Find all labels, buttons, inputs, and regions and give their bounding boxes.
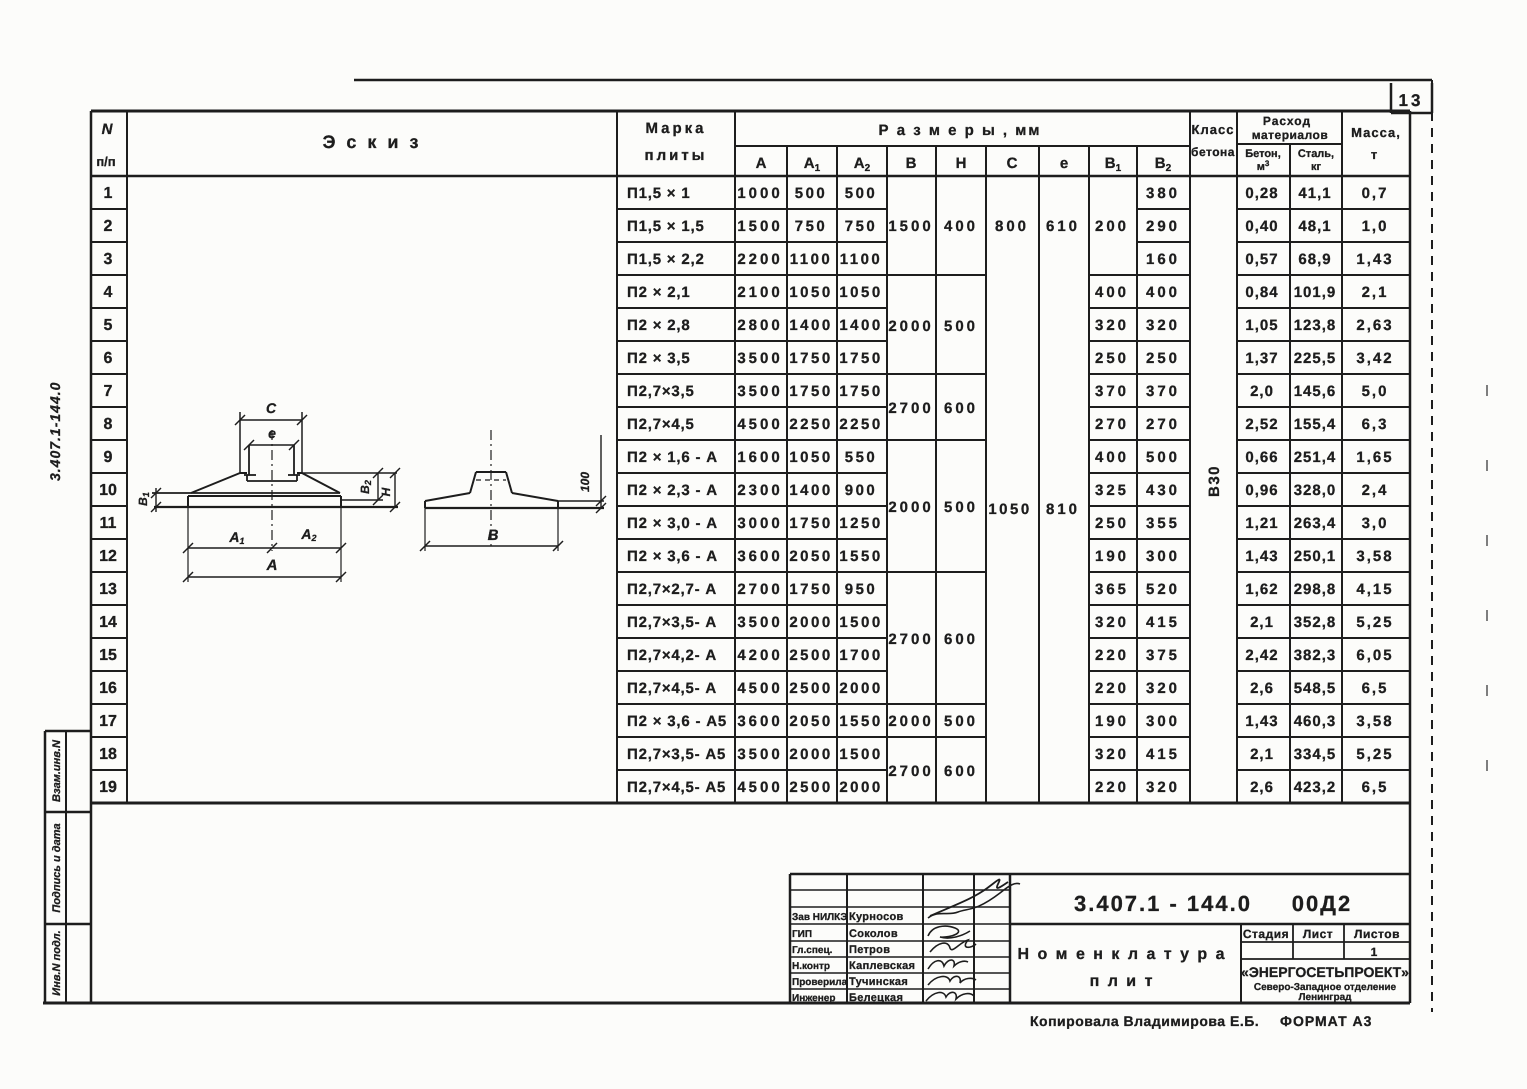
svg-text:750: 750: [845, 218, 878, 235]
svg-text:16: 16: [99, 680, 117, 697]
svg-text:550: 550: [845, 449, 878, 466]
svg-text:500: 500: [845, 185, 878, 202]
svg-text:П1,5 × 1,5: П1,5 × 1,5: [627, 218, 705, 235]
svg-text:2250: 2250: [789, 416, 832, 433]
svg-text:334,5: 334,5: [1294, 746, 1337, 763]
svg-text:2250: 2250: [839, 416, 882, 433]
svg-text:П1,5 × 2,2: П1,5 × 2,2: [627, 251, 705, 268]
svg-text:355: 355: [1146, 515, 1180, 532]
svg-text:1,43: 1,43: [1245, 713, 1278, 730]
svg-text:500: 500: [795, 185, 828, 202]
svg-text:263,4: 263,4: [1294, 515, 1337, 532]
svg-text:6: 6: [104, 350, 113, 367]
svg-text:520: 520: [1146, 581, 1180, 598]
svg-text:600: 600: [944, 400, 978, 417]
svg-text:365: 365: [1095, 581, 1129, 598]
svg-text:3,58: 3,58: [1356, 548, 1393, 565]
svg-text:415: 415: [1146, 614, 1180, 631]
svg-text:Инженер: Инженер: [792, 993, 835, 1004]
svg-text:380: 380: [1146, 185, 1180, 202]
svg-text:Петров: Петров: [849, 944, 890, 956]
svg-text:2050: 2050: [789, 713, 832, 730]
svg-text:5,0: 5,0: [1362, 383, 1389, 400]
svg-text:1,43: 1,43: [1356, 251, 1393, 268]
svg-text:400: 400: [1095, 284, 1129, 301]
svg-text:3600: 3600: [737, 548, 782, 565]
svg-text:материалов: материалов: [1252, 128, 1329, 142]
svg-text:400: 400: [944, 218, 978, 235]
svg-text:Стадия: Стадия: [1243, 927, 1289, 941]
svg-text:В: В: [906, 155, 917, 172]
svg-text:1500: 1500: [737, 218, 782, 235]
svg-text:375: 375: [1146, 647, 1180, 664]
svg-text:200: 200: [1095, 218, 1129, 235]
svg-text:«ЭНЕРГОСЕТЬПРОЕКТ»: «ЭНЕРГОСЕТЬПРОЕКТ»: [1241, 964, 1409, 980]
svg-text:П2 × 2,1: П2 × 2,1: [627, 284, 690, 301]
svg-text:1,37: 1,37: [1245, 350, 1278, 367]
svg-text:2800: 2800: [737, 317, 782, 334]
svg-text:1050: 1050: [789, 284, 832, 301]
svg-text:Масса,: Масса,: [1351, 125, 1401, 140]
svg-text:П2,7×2,7- А: П2,7×2,7- А: [627, 581, 717, 598]
svg-text:1750: 1750: [789, 581, 832, 598]
svg-text:423,2: 423,2: [1294, 779, 1337, 796]
svg-text:300: 300: [1146, 713, 1180, 730]
svg-text:1550: 1550: [839, 548, 882, 565]
svg-text:1750: 1750: [839, 350, 882, 367]
svg-text:Бетон,: Бетон,: [1245, 148, 1281, 160]
svg-text:610: 610: [1046, 218, 1080, 235]
svg-text:8: 8: [104, 416, 113, 433]
svg-text:Лист: Лист: [1303, 927, 1333, 941]
svg-text:1,05: 1,05: [1245, 317, 1278, 334]
svg-text:1050: 1050: [789, 449, 832, 466]
svg-text:370: 370: [1146, 383, 1180, 400]
svg-text:2050: 2050: [789, 548, 832, 565]
svg-text:1,0: 1,0: [1362, 218, 1389, 235]
svg-text:320: 320: [1095, 746, 1129, 763]
svg-text:2700: 2700: [737, 581, 782, 598]
svg-text:6,05: 6,05: [1356, 647, 1393, 664]
svg-text:250: 250: [1095, 350, 1129, 367]
svg-text:Тучинская: Тучинская: [849, 976, 908, 988]
svg-text:4500: 4500: [737, 416, 782, 433]
svg-text:415: 415: [1146, 746, 1180, 763]
svg-text:2000: 2000: [789, 746, 832, 763]
svg-text:3,0: 3,0: [1362, 515, 1389, 532]
svg-text:П2 × 3,5: П2 × 3,5: [627, 350, 690, 367]
svg-text:П2,7×4,5: П2,7×4,5: [627, 416, 695, 433]
svg-text:2: 2: [104, 218, 113, 235]
svg-text:320: 320: [1095, 317, 1129, 334]
svg-text:Н о м е н к л а т у р а: Н о м е н к л а т у р а: [1017, 946, 1226, 963]
svg-text:П2,7×4,5- А5: П2,7×4,5- А5: [627, 779, 726, 796]
svg-text:В: В: [488, 527, 499, 544]
svg-text:14: 14: [99, 614, 117, 631]
svg-text:12: 12: [99, 548, 117, 565]
svg-text:101,9: 101,9: [1294, 284, 1337, 301]
svg-text:68,9: 68,9: [1298, 251, 1331, 268]
svg-text:6,5: 6,5: [1362, 779, 1389, 796]
svg-text:1500: 1500: [839, 746, 882, 763]
svg-text:А: А: [266, 557, 278, 574]
svg-text:3,58: 3,58: [1356, 713, 1393, 730]
svg-text:2000: 2000: [789, 614, 832, 631]
svg-text:Копировала Владимирова Е.Б.: Копировала Владимирова Е.Б.: [1030, 1013, 1259, 1029]
svg-text:Зав НИЛКЭ: Зав НИЛКЭ: [792, 912, 848, 923]
svg-text:1750: 1750: [789, 515, 832, 532]
svg-text:П2 × 3,0 - А: П2 × 3,0 - А: [627, 515, 718, 532]
svg-text:1050: 1050: [988, 501, 1031, 518]
svg-text:П2 × 2,3 - А: П2 × 2,3 - А: [627, 482, 718, 499]
svg-text:320: 320: [1146, 779, 1180, 796]
svg-text:17: 17: [99, 713, 117, 730]
svg-text:2,1: 2,1: [1250, 746, 1274, 763]
svg-text:250: 250: [1095, 515, 1129, 532]
svg-text:2500: 2500: [789, 779, 832, 796]
svg-text:320: 320: [1095, 614, 1129, 631]
svg-text:2300: 2300: [737, 482, 782, 499]
svg-text:500: 500: [944, 499, 978, 516]
svg-text:7: 7: [104, 383, 113, 400]
svg-text:4500: 4500: [737, 680, 782, 697]
svg-text:328,0: 328,0: [1294, 482, 1337, 499]
svg-text:950: 950: [845, 581, 878, 598]
svg-text:2,4: 2,4: [1362, 482, 1389, 499]
svg-text:С: С: [1007, 155, 1018, 172]
svg-text:2700: 2700: [888, 763, 933, 780]
svg-text:2,0: 2,0: [1250, 383, 1274, 400]
svg-text:Н.контр: Н.контр: [792, 961, 830, 972]
svg-text:Класс: Класс: [1192, 122, 1235, 137]
svg-text:13: 13: [99, 581, 117, 598]
svg-text:Белецкая: Белецкая: [849, 992, 903, 1004]
svg-text:П2,7×4,5- А: П2,7×4,5- А: [627, 680, 717, 697]
svg-text:3.407.1-144.0: 3.407.1-144.0: [47, 382, 63, 481]
svg-text:Гл.спец.: Гл.спец.: [792, 945, 833, 956]
svg-text:2000: 2000: [839, 779, 882, 796]
svg-text:П2 × 2,8: П2 × 2,8: [627, 317, 690, 334]
svg-text:320: 320: [1146, 317, 1180, 334]
svg-text:3500: 3500: [737, 746, 782, 763]
svg-text:190: 190: [1095, 548, 1129, 565]
svg-text:2500: 2500: [789, 647, 832, 664]
svg-text:N: N: [102, 121, 114, 138]
svg-text:3: 3: [104, 251, 113, 268]
svg-text:382,3: 382,3: [1294, 647, 1337, 664]
svg-text:п/п: п/п: [96, 154, 115, 169]
svg-text:П2,7×3,5- А5: П2,7×3,5- А5: [627, 746, 726, 763]
svg-text:Расход: Расход: [1263, 114, 1311, 128]
svg-text:352,8: 352,8: [1294, 614, 1337, 631]
svg-text:2500: 2500: [789, 680, 832, 697]
svg-text:Курносов: Курносов: [849, 911, 904, 923]
svg-text:2700: 2700: [888, 631, 933, 648]
svg-text:В30: В30: [1206, 465, 1223, 497]
svg-text:1400: 1400: [839, 317, 882, 334]
svg-text:500: 500: [944, 713, 978, 730]
svg-text:1: 1: [104, 185, 113, 202]
svg-text:П2 × 3,6 - А5: П2 × 3,6 - А5: [627, 713, 727, 730]
svg-text:Ленинград: Ленинград: [1299, 992, 1353, 1003]
svg-text:0,40: 0,40: [1245, 218, 1278, 235]
svg-text:2000: 2000: [888, 499, 933, 516]
svg-text:П2,7×3,5- А: П2,7×3,5- А: [627, 614, 717, 631]
svg-text:бетона: бетона: [1191, 145, 1235, 159]
svg-text:9: 9: [104, 449, 113, 466]
svg-text:225,5: 225,5: [1294, 350, 1337, 367]
svg-text:1: 1: [1371, 945, 1378, 959]
svg-text:п л и т: п л и т: [1090, 973, 1155, 990]
svg-text:500: 500: [1146, 449, 1180, 466]
svg-text:Каплевская: Каплевская: [849, 960, 915, 972]
svg-text:250: 250: [1146, 350, 1180, 367]
svg-text:2000: 2000: [888, 318, 933, 335]
svg-text:1,21: 1,21: [1245, 515, 1278, 532]
svg-text:Проверила: Проверила: [792, 977, 848, 988]
svg-text:18: 18: [99, 746, 117, 763]
svg-text:5,25: 5,25: [1356, 614, 1393, 631]
svg-text:220: 220: [1095, 680, 1129, 697]
svg-text:е: е: [1060, 155, 1068, 172]
svg-text:4: 4: [104, 284, 113, 301]
svg-text:Взам.инв.N: Взам.инв.N: [51, 739, 63, 802]
svg-text:300: 300: [1146, 548, 1180, 565]
svg-text:2700: 2700: [888, 400, 933, 417]
svg-text:0,28: 0,28: [1245, 185, 1278, 202]
svg-text:плиты: плиты: [645, 147, 708, 164]
svg-text:270: 270: [1095, 416, 1129, 433]
svg-text:370: 370: [1095, 383, 1129, 400]
svg-text:19: 19: [99, 779, 117, 796]
svg-text:П2 × 1,6 - А: П2 × 1,6 - А: [627, 449, 718, 466]
svg-text:П1,5 × 1: П1,5 × 1: [627, 185, 690, 202]
svg-text:1750: 1750: [789, 350, 832, 367]
svg-text:6,3: 6,3: [1362, 416, 1389, 433]
svg-text:190: 190: [1095, 713, 1129, 730]
svg-text:48,1: 48,1: [1298, 218, 1331, 235]
svg-text:Марка: Марка: [645, 120, 706, 137]
svg-text:ГИП: ГИП: [792, 929, 812, 940]
svg-text:2,6: 2,6: [1250, 680, 1274, 697]
svg-text:290: 290: [1146, 218, 1180, 235]
svg-text:2200: 2200: [737, 251, 782, 268]
svg-text:325: 325: [1095, 482, 1129, 499]
svg-text:800: 800: [995, 218, 1029, 235]
svg-text:100: 100: [578, 472, 592, 492]
svg-text:0,96: 0,96: [1245, 482, 1278, 499]
svg-text:13: 13: [1399, 91, 1424, 110]
svg-text:250,1: 250,1: [1294, 548, 1337, 565]
svg-text:600: 600: [944, 763, 978, 780]
svg-text:1100: 1100: [840, 251, 883, 268]
svg-text:1,65: 1,65: [1356, 449, 1393, 466]
svg-text:ФОРМАТ А3: ФОРМАТ А3: [1280, 1013, 1372, 1029]
svg-text:5: 5: [104, 317, 113, 334]
svg-text:1250: 1250: [839, 515, 882, 532]
svg-text:1100: 1100: [790, 251, 833, 268]
svg-text:Листов: Листов: [1354, 927, 1400, 941]
svg-text:П2,7×4,2- А: П2,7×4,2- А: [627, 647, 717, 664]
svg-text:1550: 1550: [839, 713, 882, 730]
svg-text:251,4: 251,4: [1294, 449, 1337, 466]
svg-text:1,43: 1,43: [1245, 548, 1278, 565]
svg-text:1500: 1500: [839, 614, 882, 631]
svg-text:2,63: 2,63: [1356, 317, 1393, 334]
svg-text:1400: 1400: [789, 317, 832, 334]
svg-text:2000: 2000: [839, 680, 882, 697]
svg-text:145,6: 145,6: [1294, 383, 1337, 400]
svg-text:т: т: [1371, 147, 1377, 162]
svg-text:220: 220: [1095, 647, 1129, 664]
svg-text:Н: Н: [379, 487, 393, 496]
svg-text:460,3: 460,3: [1294, 713, 1337, 730]
svg-text:548,5: 548,5: [1294, 680, 1337, 697]
svg-text:1750: 1750: [839, 383, 882, 400]
svg-text:1500: 1500: [888, 218, 933, 235]
svg-text:Н: Н: [956, 155, 967, 172]
svg-text:1700: 1700: [839, 647, 882, 664]
svg-text:10: 10: [99, 482, 117, 499]
svg-text:1000: 1000: [737, 185, 782, 202]
svg-text:3500: 3500: [737, 383, 782, 400]
svg-text:600: 600: [944, 631, 978, 648]
svg-text:11: 11: [100, 515, 117, 532]
svg-text:4,15: 4,15: [1356, 581, 1393, 598]
svg-text:430: 430: [1146, 482, 1180, 499]
svg-text:810: 810: [1046, 501, 1080, 518]
svg-text:2000: 2000: [888, 713, 933, 730]
svg-text:0,66: 0,66: [1245, 449, 1278, 466]
svg-text:3600: 3600: [737, 713, 782, 730]
svg-text:1400: 1400: [789, 482, 832, 499]
svg-text:2,42: 2,42: [1245, 647, 1278, 664]
svg-text:1050: 1050: [839, 284, 882, 301]
svg-text:3.407.1 - 144.0: 3.407.1 - 144.0: [1074, 891, 1252, 916]
svg-text:41,1: 41,1: [1298, 185, 1331, 202]
svg-text:298,8: 298,8: [1294, 581, 1337, 598]
svg-text:2,6: 2,6: [1250, 779, 1274, 796]
svg-text:Подпись и дата: Подпись и дата: [51, 823, 63, 912]
svg-text:00Д2: 00Д2: [1292, 891, 1352, 916]
svg-text:Р а з м е р ы , мм: Р а з м е р ы , мм: [879, 122, 1042, 139]
svg-text:Инв.N подл.: Инв.N подл.: [51, 930, 63, 995]
svg-text:П2,7×3,5: П2,7×3,5: [627, 383, 695, 400]
svg-text:0,57: 0,57: [1245, 251, 1278, 268]
svg-text:155,4: 155,4: [1294, 416, 1337, 433]
svg-text:С: С: [266, 400, 277, 416]
svg-text:900: 900: [845, 482, 878, 499]
svg-text:3000: 3000: [737, 515, 782, 532]
svg-text:4200: 4200: [737, 647, 782, 664]
svg-text:2,52: 2,52: [1245, 416, 1278, 433]
svg-text:3500: 3500: [737, 614, 782, 631]
svg-text:220: 220: [1095, 779, 1129, 796]
svg-text:750: 750: [795, 218, 828, 235]
svg-text:400: 400: [1146, 284, 1180, 301]
svg-text:Сталь,: Сталь,: [1298, 148, 1334, 160]
svg-text:П2 × 3,6 - А: П2 × 3,6 - А: [627, 548, 718, 565]
svg-text:5,25: 5,25: [1356, 746, 1393, 763]
svg-text:3,42: 3,42: [1356, 350, 1393, 367]
svg-text:Соколов: Соколов: [849, 928, 898, 940]
svg-text:320: 320: [1146, 680, 1180, 697]
svg-text:123,8: 123,8: [1294, 317, 1337, 334]
svg-text:2,1: 2,1: [1250, 614, 1274, 631]
svg-text:400: 400: [1095, 449, 1129, 466]
svg-text:500: 500: [944, 318, 978, 335]
svg-text:0,7: 0,7: [1362, 185, 1389, 202]
svg-text:15: 15: [99, 647, 117, 664]
svg-text:А: А: [756, 155, 767, 172]
svg-text:1600: 1600: [737, 449, 782, 466]
svg-text:3500: 3500: [737, 350, 782, 367]
svg-text:Э с к и з: Э с к и з: [323, 132, 422, 152]
svg-text:1,62: 1,62: [1245, 581, 1278, 598]
svg-text:4500: 4500: [737, 779, 782, 796]
svg-text:0,84: 0,84: [1245, 284, 1278, 301]
svg-text:1750: 1750: [789, 383, 832, 400]
svg-text:6,5: 6,5: [1362, 680, 1389, 697]
svg-text:кг: кг: [1311, 161, 1322, 173]
svg-text:2,1: 2,1: [1362, 284, 1389, 301]
svg-text:160: 160: [1146, 251, 1180, 268]
svg-text:2100: 2100: [737, 284, 782, 301]
svg-text:270: 270: [1146, 416, 1180, 433]
